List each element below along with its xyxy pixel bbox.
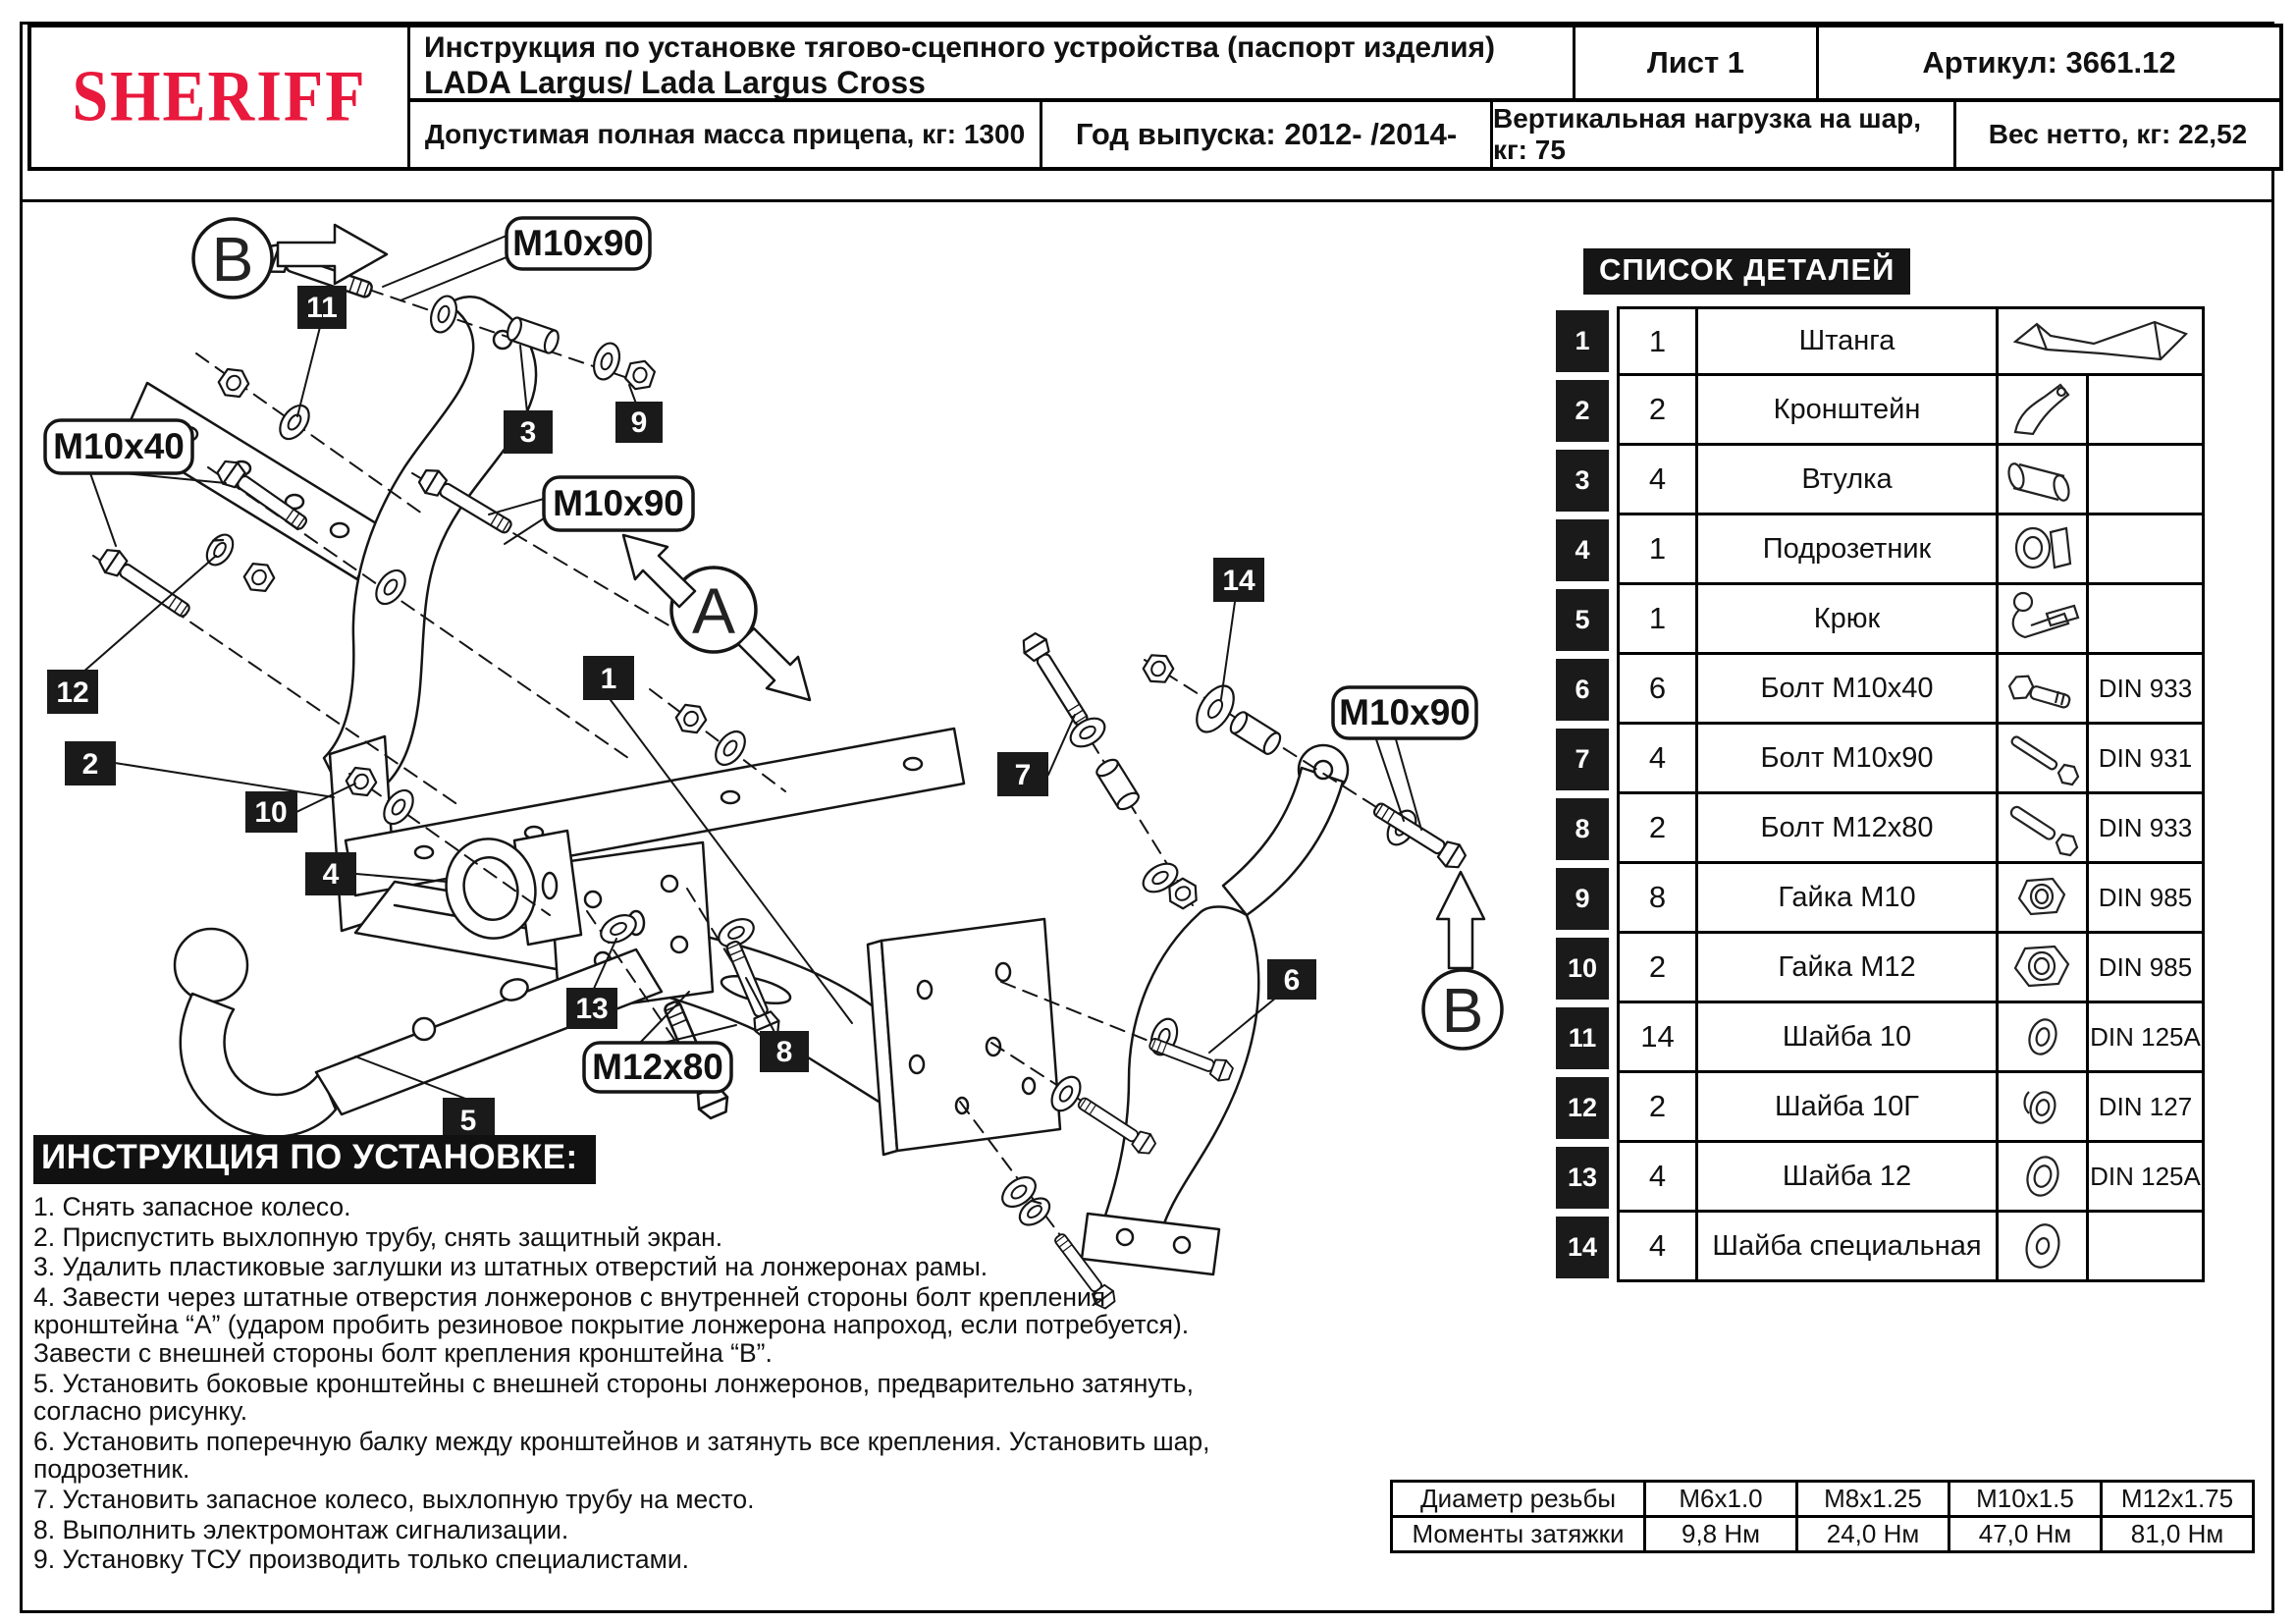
production-year: Год выпуска: 2012- /2014-	[1042, 102, 1493, 167]
part-icon-hook	[1999, 585, 2089, 655]
svg-text:8: 8	[776, 1036, 793, 1068]
part-qty: 2	[1617, 934, 1698, 1003]
torque-values-row: Моменты затяжки 9,8 Нм 24,0 Нм 47,0 Нм 8…	[1392, 1517, 2254, 1552]
instruction-steps: 1. Снять запасное колесо. 2. Приспустить…	[33, 1193, 1241, 1574]
part-din	[2089, 376, 2205, 446]
part-name: Болт М10х90	[1698, 725, 1999, 794]
title-line1: Инструкция по установке тягово-сцепного …	[424, 31, 1573, 65]
header-main: Инструкция по установке тягово-сцепного …	[410, 27, 2279, 167]
svg-text:9: 9	[631, 406, 648, 439]
svg-text:14: 14	[1222, 565, 1255, 597]
part-name: Шайба 10Г	[1698, 1073, 1999, 1143]
instructions-title: ИНСТРУКЦИЯ ПО УСТАНОВКЕ:	[33, 1135, 596, 1184]
svg-text:13: 13	[575, 993, 608, 1025]
view-a-arrow-upleft-icon	[623, 535, 695, 607]
view-b-top-letter: B	[212, 224, 254, 295]
torque-diameter-value: М12х1.75	[2102, 1482, 2254, 1517]
callout-m10x90-top: M10x90	[383, 218, 650, 300]
parts-row-7: 7 4 Болт М10х90 DIN 931	[1556, 725, 2205, 794]
part-icon-washer	[1999, 1143, 2089, 1213]
part-din: DIN 933	[2089, 794, 2205, 864]
brand-logo: SHERIFF	[31, 27, 410, 167]
part-name: Гайка М10	[1698, 864, 1999, 934]
part-marker-8: 8	[760, 1031, 809, 1072]
part-din	[2089, 515, 2205, 585]
title-line2: LADA Largus/ Lada Largus Cross	[424, 65, 1573, 100]
part-number-badge: 13	[1556, 1147, 1609, 1209]
sheet-number: Лист 1	[1575, 27, 1819, 98]
part-marker-2: 2	[65, 741, 116, 785]
instruction-step: 1. Снять запасное колесо.	[33, 1193, 1241, 1221]
instruction-step: 2. Приспустить выхлопную трубу, снять за…	[33, 1223, 1241, 1252]
view-b-right: B	[1423, 872, 1502, 1049]
view-a-letter: A	[692, 574, 735, 647]
svg-text:1: 1	[601, 663, 617, 695]
svg-text:2: 2	[82, 748, 99, 781]
part-din: DIN 985	[2089, 864, 2205, 934]
part-marker-10: 10	[245, 791, 297, 833]
torque-diameter-row: Диаметр резьбы М6х1.0 М8х1.25 М10х1.5 М1…	[1392, 1482, 2254, 1517]
parts-row-3: 3 4 Втулка	[1556, 446, 2205, 515]
article-number: Артикул: 3661.12	[1819, 27, 2279, 98]
parts-list: 1 1 Штанга 2 2 Кронштейн 3 4 Втулка	[1556, 306, 2205, 1282]
svg-text:M12x80: M12x80	[592, 1047, 723, 1087]
part-name: Подрозетник	[1698, 515, 1999, 585]
svg-text:M10x90: M10x90	[553, 483, 684, 523]
part-name: Крюк	[1698, 585, 1999, 655]
part-name: Втулка	[1698, 446, 1999, 515]
part-name: Шайба 10	[1698, 1003, 1999, 1073]
part-din: DIN 931	[2089, 725, 2205, 794]
parts-row-4: 4 1 Подрозетник	[1556, 515, 2205, 585]
part-icon-bracket	[1999, 376, 2089, 446]
part-number-badge: 10	[1556, 938, 1609, 1000]
part-icon-spring-washer	[1999, 1073, 2089, 1143]
part-qty: 4	[1617, 446, 1698, 515]
part-number-badge: 4	[1556, 519, 1609, 581]
torque-value: 24,0 Нм	[1797, 1517, 1949, 1552]
part-icon-nut	[1999, 864, 2089, 934]
svg-text:4: 4	[323, 858, 340, 891]
part-marker-13: 13	[566, 988, 617, 1029]
part-din	[2089, 446, 2205, 515]
part-number-badge: 2	[1556, 380, 1609, 442]
instruction-step: 6. Установить поперечную балку между кро…	[33, 1428, 1241, 1484]
parts-row-14: 14 4 Шайба специальная	[1556, 1213, 2205, 1282]
part-marker-11: 11	[297, 286, 347, 329]
torque-values-label: Моменты затяжки	[1392, 1517, 1645, 1552]
part-icon-washer	[1999, 1003, 2089, 1073]
svg-text:12: 12	[56, 677, 88, 709]
part-icon-beam	[1999, 306, 2205, 376]
parts-row-2: 2 2 Кронштейн	[1556, 376, 2205, 446]
view-b-right-letter: B	[1442, 975, 1484, 1046]
part-marker-3: 3	[504, 410, 553, 454]
torque-diameter-label: Диаметр резьбы	[1392, 1482, 1645, 1517]
part-number-badge: 3	[1556, 450, 1609, 512]
parts-list-title: СПИСОК ДЕТАЛЕЙ	[1583, 248, 1910, 295]
torque-value: 81,0 Нм	[2102, 1517, 2254, 1552]
part-name: Штанга	[1698, 306, 1999, 376]
part-icon-bolt-short	[1999, 655, 2089, 725]
part-qty: 2	[1617, 1073, 1698, 1143]
part-marker-14: 14	[1213, 558, 1264, 602]
instruction-step: 8. Выполнить электромонтаж сигнализации.	[33, 1516, 1241, 1544]
parts-row-10: 10 2 Гайка М12 DIN 985	[1556, 934, 2205, 1003]
part-number-badge: 7	[1556, 729, 1609, 790]
torque-diameter-value: М6х1.0	[1645, 1482, 1797, 1517]
brand-logo-text: SHERIFF	[72, 55, 366, 138]
torque-table: Диаметр резьбы М6х1.0 М8х1.25 М10х1.5 М1…	[1390, 1480, 2255, 1553]
parts-row-13: 13 4 Шайба 12 DIN 125A	[1556, 1143, 2205, 1213]
part-marker-7: 7	[997, 752, 1048, 796]
part-marker-1: 1	[583, 656, 634, 700]
part-icon-washer-special	[1999, 1213, 2089, 1282]
part-din: DIN 933	[2089, 655, 2205, 725]
part-qty: 1	[1617, 306, 1698, 376]
net-weight: Вес нетто, кг: 22,52	[1956, 102, 2279, 167]
svg-text:6: 6	[1284, 964, 1301, 997]
part-din: DIN 127	[2089, 1073, 2205, 1143]
crossplate-right-end	[868, 919, 1060, 1155]
part-din	[2089, 1213, 2205, 1282]
parts-row-6: 6 6 Болт М10х40 DIN 933	[1556, 655, 2205, 725]
part-marker-12: 12	[47, 670, 98, 714]
torque-diameter-value: М10х1.5	[1949, 1482, 2102, 1517]
instruction-step: 5. Установить боковые кронштейны с внешн…	[33, 1370, 1241, 1426]
part-din: DIN 125A	[2089, 1003, 2205, 1073]
instruction-sheet: SHERIFF Инструкция по установке тягово-с…	[0, 0, 2296, 1624]
part-qty: 2	[1617, 794, 1698, 864]
part-marker-9: 9	[615, 402, 663, 443]
parts-row-5: 5 1 Крюк	[1556, 585, 2205, 655]
part-name: Шайба 12	[1698, 1143, 1999, 1213]
part-name: Болт М12х80	[1698, 794, 1999, 864]
part-qty: 14	[1617, 1003, 1698, 1073]
view-b-right-arrow-icon	[1437, 872, 1484, 968]
document-title: Инструкция по установке тягово-сцепного …	[410, 27, 1575, 98]
part-qty: 1	[1617, 585, 1698, 655]
part-qty: 6	[1617, 655, 1698, 725]
instruction-step: 7. Установить запасное колесо, выхлопную…	[33, 1486, 1241, 1514]
torque-diameter-value: М8х1.25	[1797, 1482, 1949, 1517]
svg-text:5: 5	[460, 1105, 477, 1137]
part-qty: 4	[1617, 725, 1698, 794]
part-din: DIN 125A	[2089, 1143, 2205, 1213]
part-icon-bolt-long	[1999, 725, 2089, 794]
instruction-step: 4. Завести через штатные отверстия лонже…	[33, 1283, 1241, 1368]
part-din	[2089, 585, 2205, 655]
part-number-badge: 6	[1556, 659, 1609, 721]
part-din: DIN 985	[2089, 934, 2205, 1003]
part-qty: 2	[1617, 376, 1698, 446]
vertical-load: Вертикальная нагрузка на шар, кг: 75	[1493, 102, 1956, 167]
part-name: Гайка М12	[1698, 934, 1999, 1003]
part-number-badge: 12	[1556, 1077, 1609, 1139]
callout-m10x90-mid: M10x90	[489, 477, 693, 544]
part-qty: 4	[1617, 1213, 1698, 1282]
part-icon-nut	[1999, 934, 2089, 1003]
svg-text:M10x40: M10x40	[53, 426, 185, 466]
svg-text:10: 10	[254, 796, 287, 829]
part-number-badge: 11	[1556, 1007, 1609, 1069]
part-icon-socket	[1999, 515, 2089, 585]
installation-instructions: ИНСТРУКЦИЯ ПО УСТАНОВКЕ: 1. Снять запасн…	[33, 1135, 1241, 1576]
parts-row-9: 9 8 Гайка М10 DIN 985	[1556, 864, 2205, 934]
header-table: SHERIFF Инструкция по установке тягово-с…	[27, 24, 2283, 171]
part-icon-bolt-long	[1999, 794, 2089, 864]
part-number-badge: 5	[1556, 589, 1609, 651]
part-marker-6: 6	[1267, 959, 1316, 1000]
part-number-badge: 9	[1556, 868, 1609, 930]
part-number-badge: 1	[1556, 310, 1609, 372]
part-qty: 4	[1617, 1143, 1698, 1213]
callout-m10x90-right: M10x90	[1333, 687, 1476, 830]
part-name: Шайба специальная	[1698, 1213, 1999, 1282]
svg-text:M10x90: M10x90	[1339, 692, 1470, 732]
instruction-step: 9. Установку ТСУ производить только спец…	[33, 1545, 1241, 1574]
part-icon-bushing	[1999, 446, 2089, 515]
part-marker-4: 4	[305, 852, 356, 895]
left-bracket	[124, 297, 536, 798]
view-a-arrow-downright-icon	[738, 628, 810, 700]
parts-row-11: 11 14 Шайба 10 DIN 125A	[1556, 1003, 2205, 1073]
svg-text:3: 3	[520, 416, 537, 449]
part-number-badge: 8	[1556, 798, 1609, 860]
part-name: Кронштейн	[1698, 376, 1999, 446]
part-number-badge: 14	[1556, 1217, 1609, 1278]
instruction-step: 3. Удалить пластиковые заглушки из штатн…	[33, 1253, 1241, 1281]
parts-row-8: 8 2 Болт М12х80 DIN 933	[1556, 794, 2205, 864]
part-qty: 8	[1617, 864, 1698, 934]
svg-text:M10x90: M10x90	[512, 223, 644, 263]
part-name: Болт М10х40	[1698, 655, 1999, 725]
parts-row-1: 1 1 Штанга	[1556, 306, 2205, 376]
trailer-mass: Допустимая полная масса прицепа, кг: 130…	[410, 102, 1042, 167]
part-qty: 1	[1617, 515, 1698, 585]
svg-text:7: 7	[1015, 759, 1032, 791]
svg-text:11: 11	[306, 292, 338, 324]
parts-row-12: 12 2 Шайба 10Г DIN 127	[1556, 1073, 2205, 1143]
view-a: A	[623, 535, 810, 700]
torque-value: 9,8 Нм	[1645, 1517, 1797, 1552]
torque-value: 47,0 Нм	[1949, 1517, 2102, 1552]
